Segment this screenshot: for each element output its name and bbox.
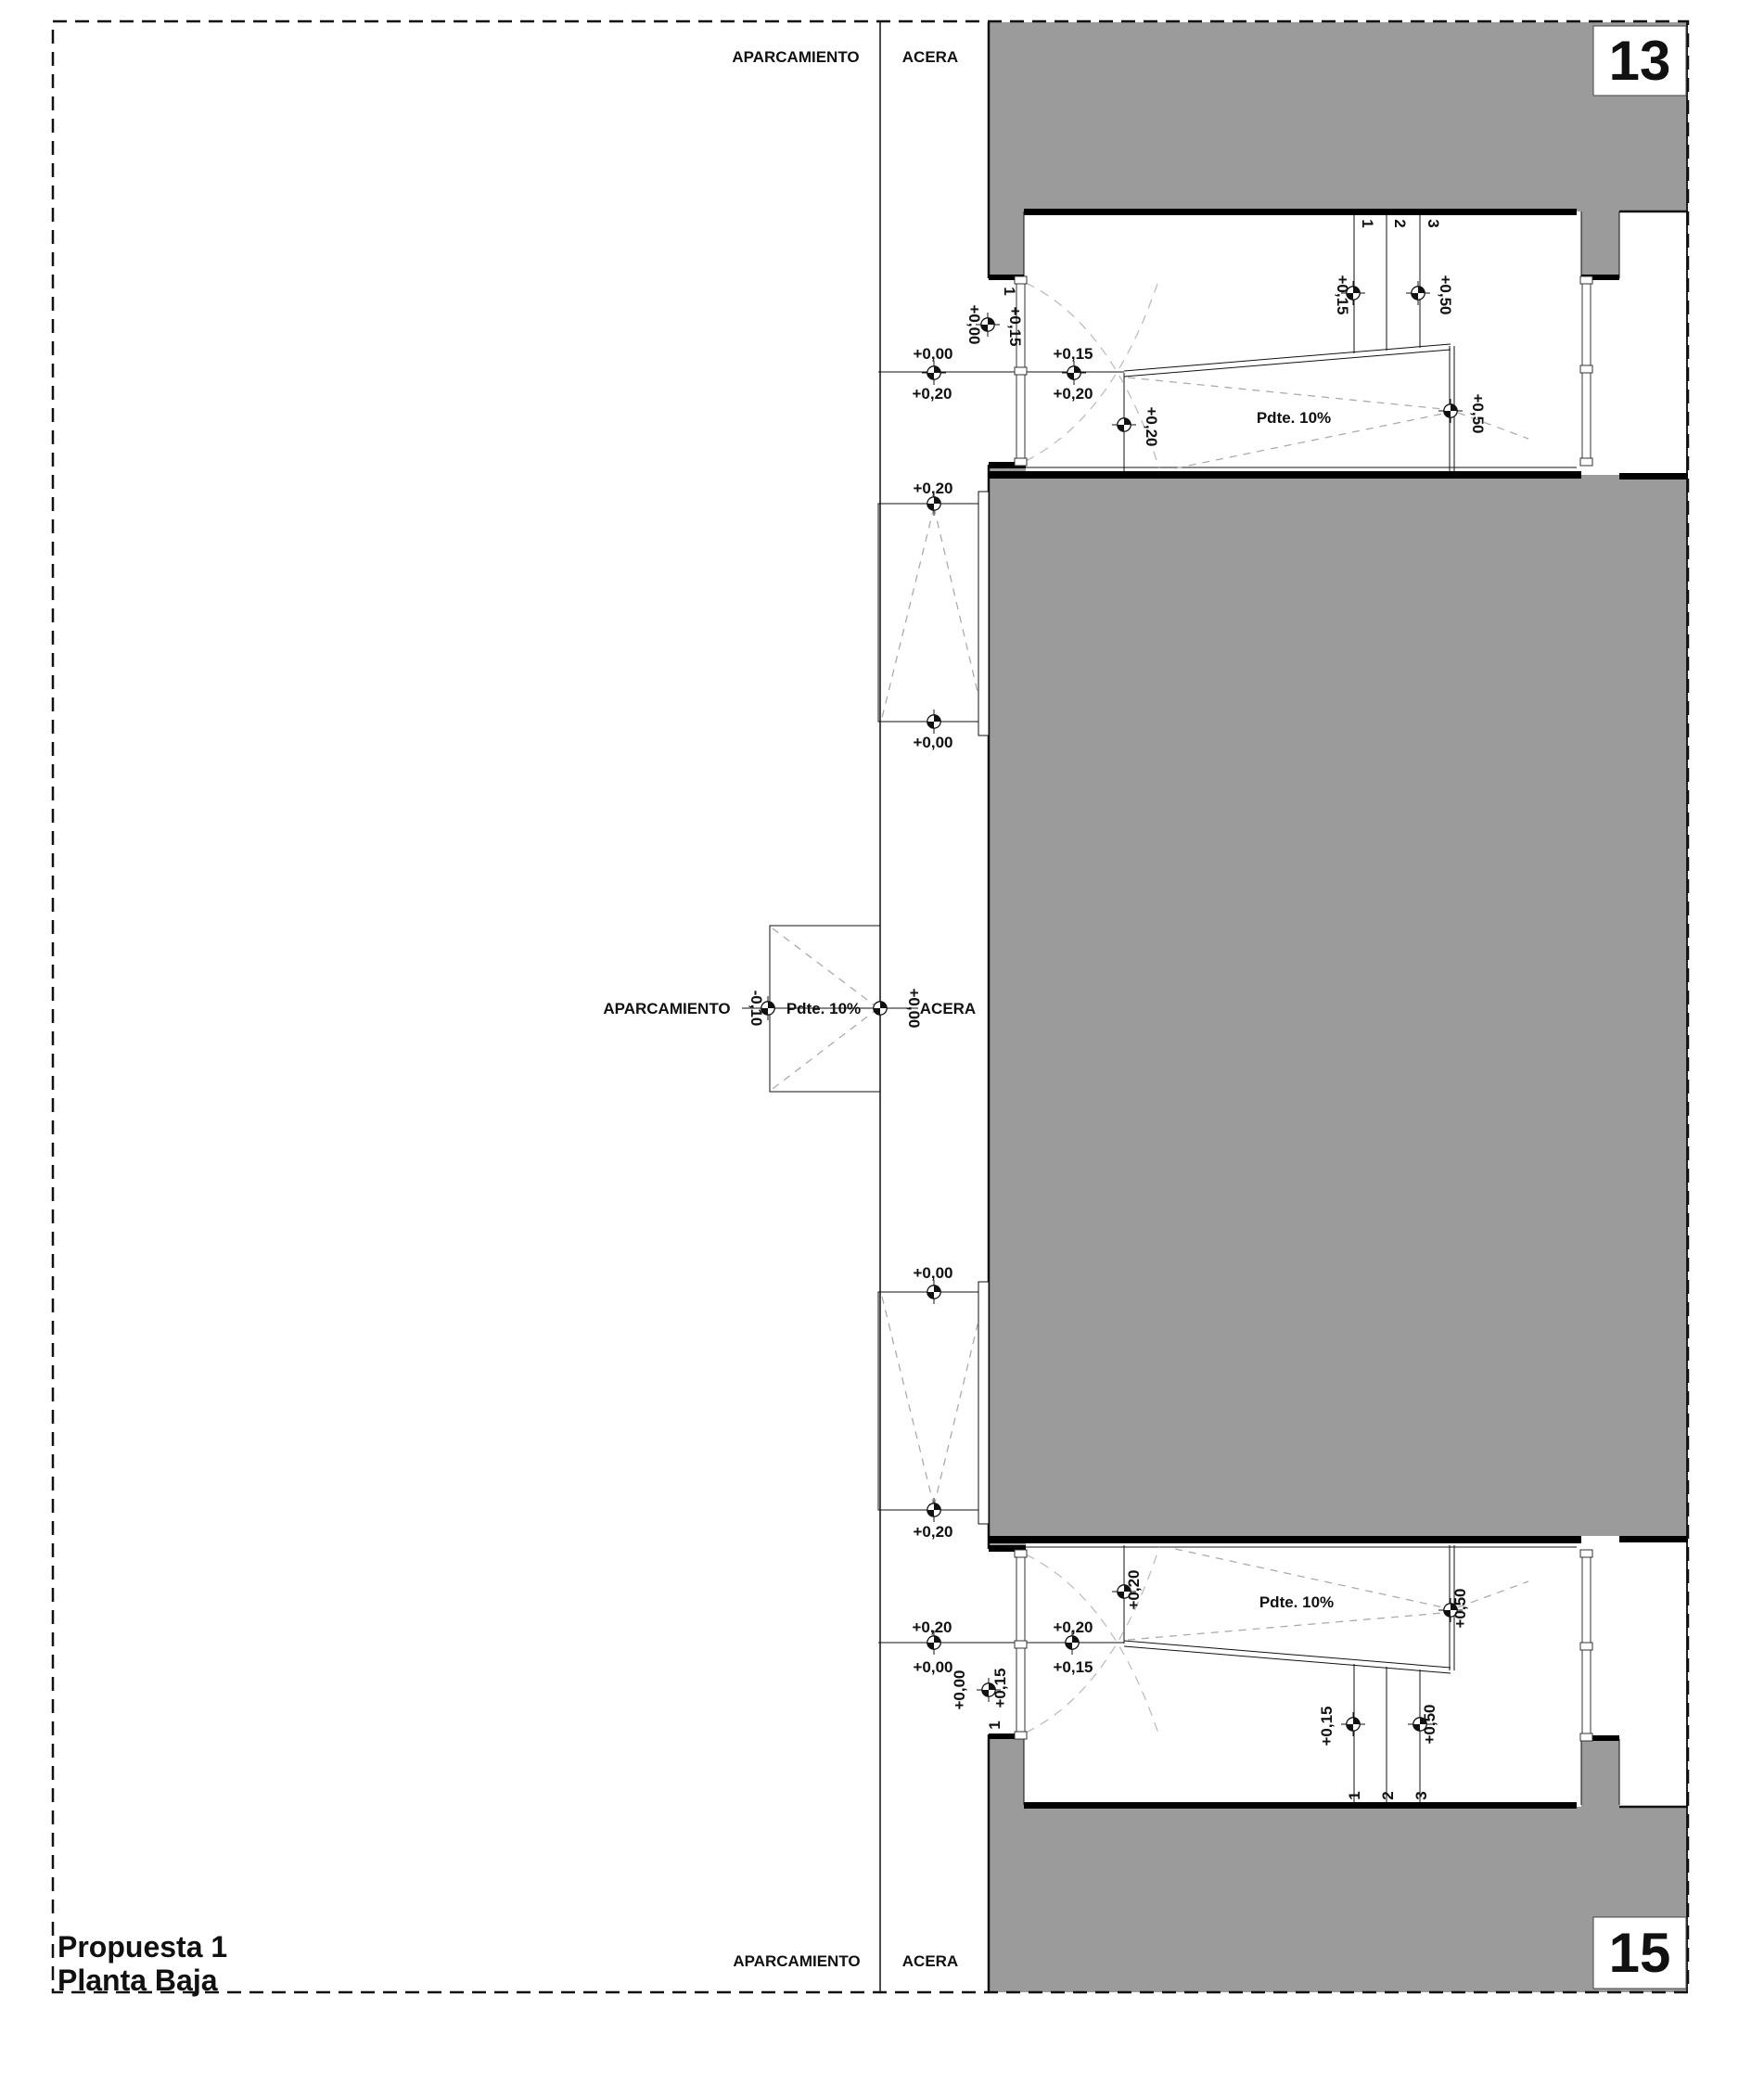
label-crossing-slope: Pdte. 10% [786,1000,861,1017]
ramp-edge-top-b [1124,350,1451,377]
gt-cross1-top: +0,00 [913,345,952,363]
gt-step-n1: 1 [1359,219,1376,227]
level-marker-icon [922,710,946,734]
gb-step-high: +0,50 [1421,1704,1438,1744]
label-parking-top: APARCAMIENTO [732,48,859,66]
title-line-1: Propuesta 1 [58,1930,227,1964]
gb-win-num: 1 [986,1721,1003,1729]
level-marker-icon [922,1498,946,1522]
gt-win-out: +0,00 [965,304,983,344]
wall-top-room-bottom-right [1619,473,1688,480]
sheet-number-bottom: 15 [1609,1922,1671,1984]
label-sidewalk-top: ACERA [902,48,958,66]
wall-bottom-room-bottom [1024,1802,1577,1809]
gt-step-high: +0,50 [1437,275,1454,314]
label-parking-bottom: APARCAMIENTO [733,1952,860,1970]
building-mass-central [989,465,1688,1549]
ramp-edge-bottom-a [1124,1641,1451,1668]
level-marker-icon [1438,399,1463,423]
building-mass-top [989,22,1688,280]
gb-cross1-top: +0,20 [912,1618,952,1636]
curb-strip-lower [978,1282,989,1524]
gb-slope: Pdte. 10% [1259,1593,1334,1611]
gb-win-in: +0,15 [991,1668,1009,1708]
label-ramp-upper-bottom: +0,00 [913,734,952,751]
sidewalk-ramp-upper [878,504,980,722]
gb-step-n1: 1 [1346,1791,1363,1799]
wall-top-room-bottom [989,471,1581,479]
gb-ramp-end: +0,50 [1451,1588,1469,1628]
gt-ramp-start: +0,20 [1143,406,1160,446]
label-crossing-sidewalk: ACERA [920,1000,976,1017]
level-marker-icon [1341,1712,1365,1736]
level-marker-icon [922,361,946,385]
gb-ramp-start: +0,20 [1125,1569,1143,1609]
gt-step-n2: 2 [1391,219,1409,227]
wall-bottom-room-top [989,1536,1581,1543]
level-marker-icon [922,1280,946,1304]
wall-top-room-top [1024,209,1577,215]
gb-cross2-top: +0,20 [1053,1618,1093,1636]
gb-step-n3: 3 [1412,1791,1430,1799]
ramp-edge-top-a [1124,344,1451,371]
label-crossing-parking-level: -0,10 [748,991,765,1027]
level-marker-icon [1406,281,1430,305]
building-mass-bottom [989,1734,1688,1992]
gb-cross1-bottom: +0,00 [913,1658,952,1676]
gb-step-low: +0,15 [1318,1706,1336,1746]
label-ramp-lower-top: +0,00 [913,1264,952,1282]
level-marker-icon [868,996,892,1020]
gt-step-low: +0,15 [1334,275,1351,314]
gt-step-n3: 3 [1425,219,1442,227]
sidewalk-ramp-lower [878,1292,980,1510]
label-crossing-parking: APARCAMIENTO [603,1000,730,1017]
label-ramp-upper-top: +0,20 [913,480,952,497]
sheet-number-top: 13 [1609,30,1671,92]
site-plan: APARCAMIENTO ACERA APARCAMIENTO ACERA 13… [0,0,1764,2098]
wall-bottom-room-top-right [1619,1536,1688,1542]
label-ramp-lower-bottom: +0,20 [913,1523,952,1541]
level-marker-icon [1062,361,1086,385]
gb-win-out: +0,00 [951,1669,968,1709]
gb-cross2-bottom: +0,15 [1053,1658,1093,1676]
gt-cross1-bottom: +0,20 [912,385,952,403]
gt-win-num: 1 [1001,287,1018,295]
gt-cross2-bottom: +0,20 [1053,385,1093,403]
gt-ramp-end: +0,50 [1469,393,1487,433]
drawing-sheet: APARCAMIENTO ACERA APARCAMIENTO ACERA 13… [0,0,1764,2098]
garage-ramp-top [878,215,1454,471]
gt-slope: Pdte. 10% [1257,409,1331,427]
ramp-edge-bottom-b [1124,1646,1451,1673]
label-sidewalk-bottom: ACERA [902,1952,958,1970]
gt-cross2-top: +0,15 [1053,345,1093,363]
gt-win-in: +0,15 [1006,306,1024,346]
curb-strip-upper [978,492,989,736]
level-marker-icon [1112,413,1136,437]
gb-step-n2: 2 [1379,1791,1397,1799]
